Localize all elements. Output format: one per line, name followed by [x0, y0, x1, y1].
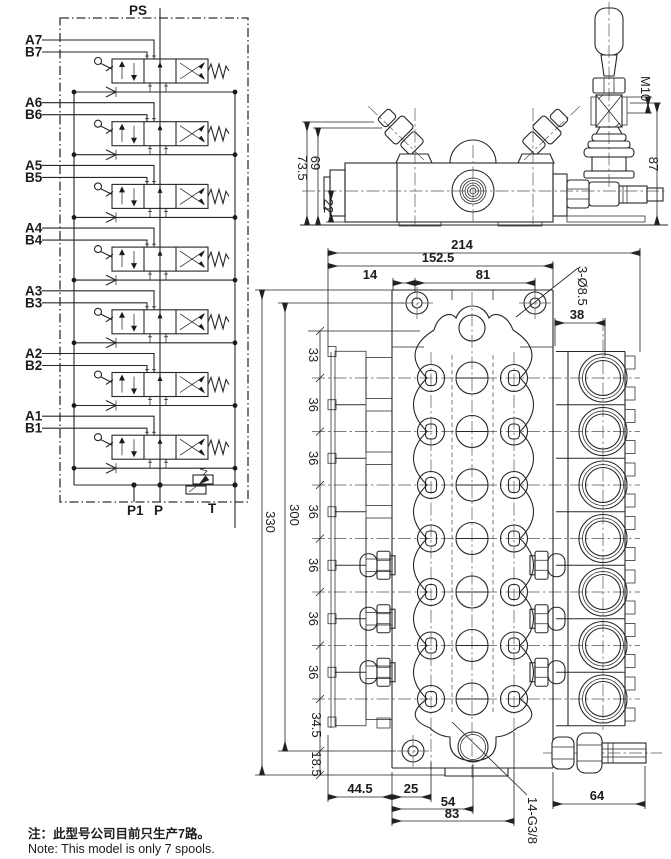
hydraulic-schematic: PS A7 B7 A6 B6 A5 B5 A4 B4 [25, 3, 248, 528]
dim-83: 83 [445, 806, 459, 821]
valve-section-7: A7 B7 [25, 33, 237, 98]
dim-36-2: 36 [306, 451, 321, 465]
valve-section-6: A6 B6 [25, 95, 237, 160]
dim-64: 64 [590, 788, 605, 803]
valve-section-4: A4 B4 [25, 221, 237, 286]
valve-body-top [345, 163, 553, 222]
port-thread-callout: 14-G3/8 [525, 797, 540, 844]
port-b-label: B4 [25, 233, 43, 248]
valve-section-3: A3 B3 [25, 283, 237, 348]
dim-14: 14 [363, 267, 378, 282]
dim-36-5: 36 [306, 612, 321, 626]
inlet-fitting-left [368, 106, 432, 163]
dim-22: 22 [321, 199, 336, 213]
dim-18-5: 18.5 [309, 751, 324, 776]
front-view: 214 152.5 14 81 3-Ø8.5 38 330 300 33 36 … [255, 237, 662, 844]
dim-73-5: 73.5 [295, 155, 310, 180]
dim-152-5: 152.5 [422, 250, 455, 265]
supply-port-label: PS [129, 3, 147, 18]
valve-section-2: A2 B2 [25, 346, 237, 411]
dim-44-5: 44.5 [347, 781, 372, 796]
dim-36-1: 36 [306, 398, 321, 412]
dim-36-3: 36 [306, 505, 321, 519]
dim-87: 87 [646, 157, 661, 171]
dim-300: 300 [287, 504, 302, 526]
inlet-fitting-right [518, 106, 580, 163]
dim-36-4: 36 [306, 558, 321, 572]
note-chinese: 注：此型号公司目前只生产7路。 [28, 826, 210, 841]
dim-69: 69 [308, 156, 323, 170]
port-p1-label: P1 [127, 503, 144, 518]
dim-34-5: 34.5 [309, 712, 324, 737]
engineering-drawing: PS A7 B7 A6 B6 A5 B5 A4 B4 [0, 0, 671, 859]
port-p-label: P [154, 503, 163, 518]
port-b-label: B7 [25, 45, 42, 60]
thread-callout-m10: M10 [638, 76, 653, 101]
end-cover-fittings [553, 174, 663, 222]
dim-81: 81 [476, 267, 490, 282]
top-view: 73.5 69 22 87 M10 [295, 2, 668, 226]
port-b-label: B3 [25, 295, 43, 310]
valve-body-front [392, 290, 553, 776]
dim-330: 330 [263, 511, 278, 533]
relief-valve-symbol [186, 468, 213, 494]
dim-36-6: 36 [306, 665, 321, 679]
dim-25: 25 [404, 781, 418, 796]
valve-section-1: A1 B1 [25, 409, 237, 474]
hole-callout: 3-Ø8.5 [575, 266, 590, 306]
control-handle [584, 2, 634, 188]
note-english: Note: This model is only 7 spools. [28, 842, 215, 856]
notes: 注：此型号公司目前只生产7路。 Note: This model is only… [28, 826, 215, 856]
dim-33: 33 [306, 348, 321, 362]
mounting-hole-top-left [401, 287, 433, 319]
port-b-label: B5 [25, 170, 43, 185]
bottom-port-circle [458, 732, 488, 762]
mounting-hole-bottom [397, 735, 429, 767]
port-t-label: T [208, 501, 217, 516]
port-b-label: B1 [25, 421, 43, 436]
valve-drawing-svg: PS A7 B7 A6 B6 A5 B5 A4 B4 [0, 0, 671, 859]
outlet-fitting-bottom [543, 733, 662, 773]
dim-214: 214 [451, 237, 473, 252]
dim-38: 38 [570, 307, 584, 322]
port-b-label: B6 [25, 107, 43, 122]
port-b-label: B2 [25, 358, 42, 373]
valve-section-5: A5 B5 [25, 158, 237, 223]
